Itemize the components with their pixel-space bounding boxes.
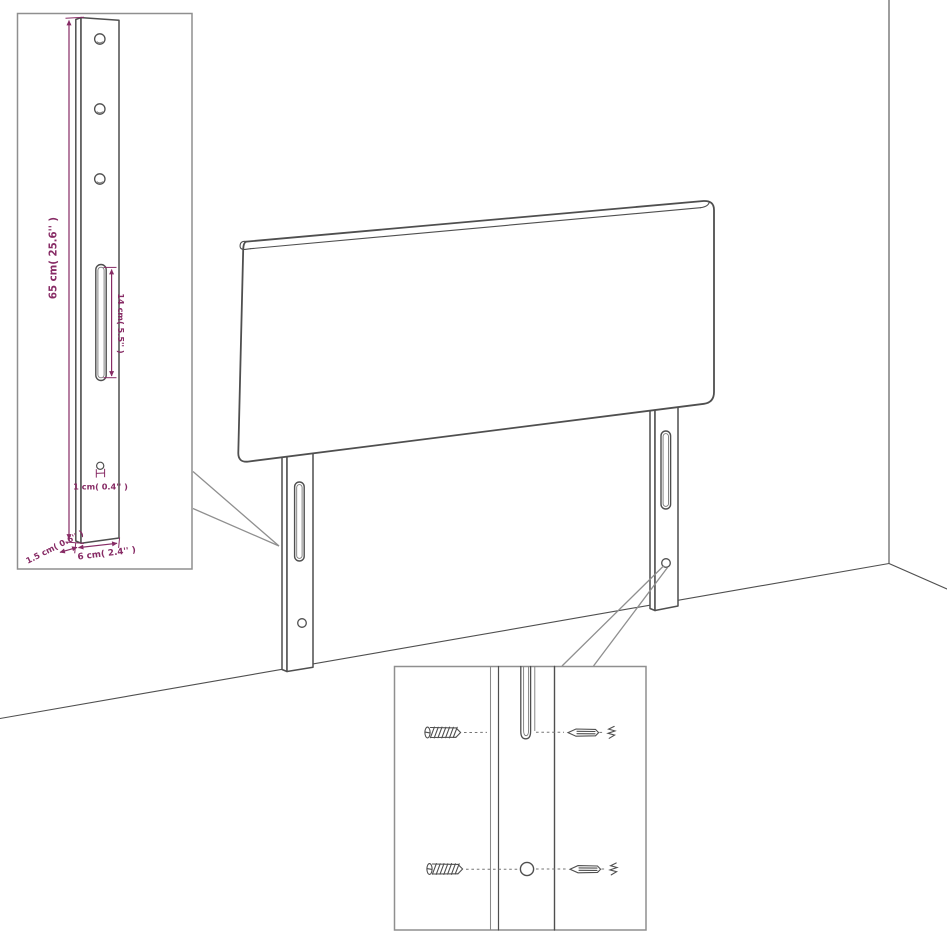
callout-line (193, 509, 279, 547)
bracket-side-face (76, 18, 81, 544)
floor-wall-line-right (889, 564, 947, 590)
headboard-left-leg (282, 446, 313, 672)
leg-detail-inset: 65 cm( 25.6'' ) 14 cm( 5.5'' ) 1 cm( 0.4… (18, 14, 193, 570)
bracket-slot (96, 265, 106, 381)
dim-label-hole-diameter: 1 cm( 0.4'' ) (73, 482, 128, 492)
callout-to-leg-detail (193, 472, 279, 547)
diagram-canvas: 65 cm( 25.6'' ) 14 cm( 5.5'' ) 1 cm( 0.4… (0, 0, 947, 947)
dim-label-leg-height: 65 cm( 25.6'' ) (49, 217, 60, 299)
dim-label-slot-length: 14 cm( 5.5'' ) (116, 293, 126, 354)
assembly-diagram: 65 cm( 25.6'' ) 14 cm( 5.5'' ) 1 cm( 0.4… (0, 0, 947, 947)
bracket-small-hole (97, 462, 104, 469)
right-leg-slot (661, 431, 671, 509)
headboard-panel (238, 201, 714, 462)
leg-bracket-drawing (76, 18, 119, 544)
callout-line (594, 568, 668, 667)
callout-line (193, 472, 279, 547)
mounting-detail-inset (395, 667, 647, 931)
headboard-right-leg (650, 402, 678, 611)
strip-round-hole (520, 862, 533, 875)
left-leg-slot (295, 482, 305, 561)
left-leg-hole (298, 619, 307, 628)
wall-plug-icon (568, 729, 599, 736)
wall-plug-icon (570, 866, 601, 873)
callout-line (562, 566, 664, 667)
